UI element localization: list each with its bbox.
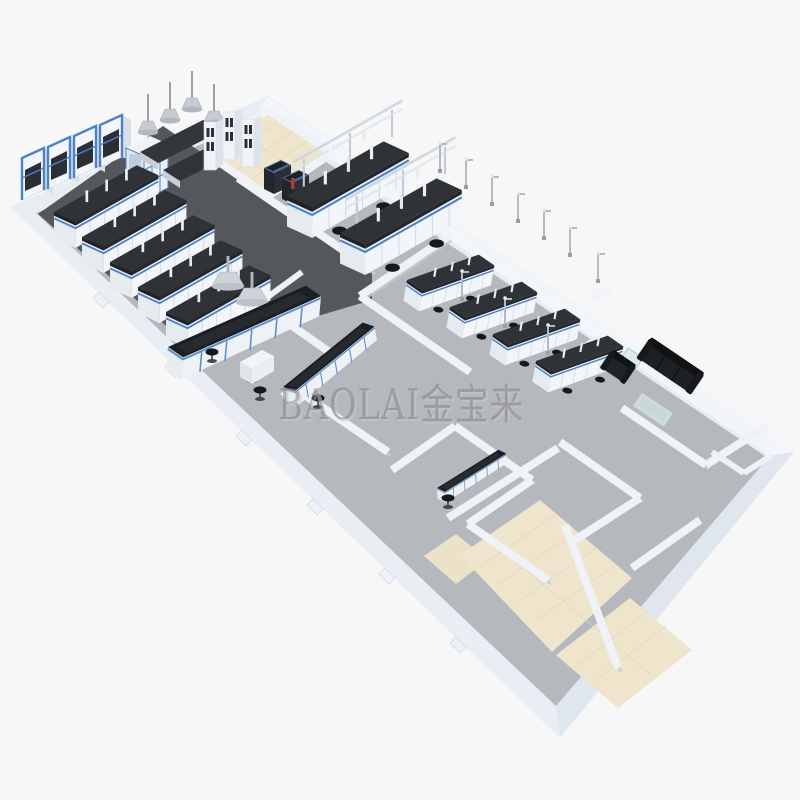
service-drop-icon <box>596 251 605 283</box>
white-equipment-box <box>584 286 616 302</box>
floorplan-canvas: BAOLAI金宝来 BAOLAI金宝来 <box>0 0 800 800</box>
pendant-cone-icon <box>160 82 180 124</box>
service-drop-icon <box>542 208 551 240</box>
service-drop-icon <box>516 191 525 223</box>
pendant-cone-icon <box>182 71 202 113</box>
service-drop-icon <box>464 157 473 189</box>
pendant-cone-icon <box>138 94 158 136</box>
watermark: BAOLAI金宝来 BAOLAI金宝来 <box>278 380 526 431</box>
watermark-text: BAOLAI金宝来 <box>278 380 524 429</box>
lab-floorplan-render: BAOLAI金宝来 BAOLAI金宝来 <box>0 0 800 800</box>
service-drop-icon <box>490 174 499 206</box>
service-drop-icon <box>568 225 577 257</box>
vent-column <box>223 109 242 160</box>
red-bottle <box>291 178 295 189</box>
pendant-cone-icon <box>204 84 224 126</box>
vent-column <box>204 119 223 170</box>
vent-column <box>242 116 261 167</box>
